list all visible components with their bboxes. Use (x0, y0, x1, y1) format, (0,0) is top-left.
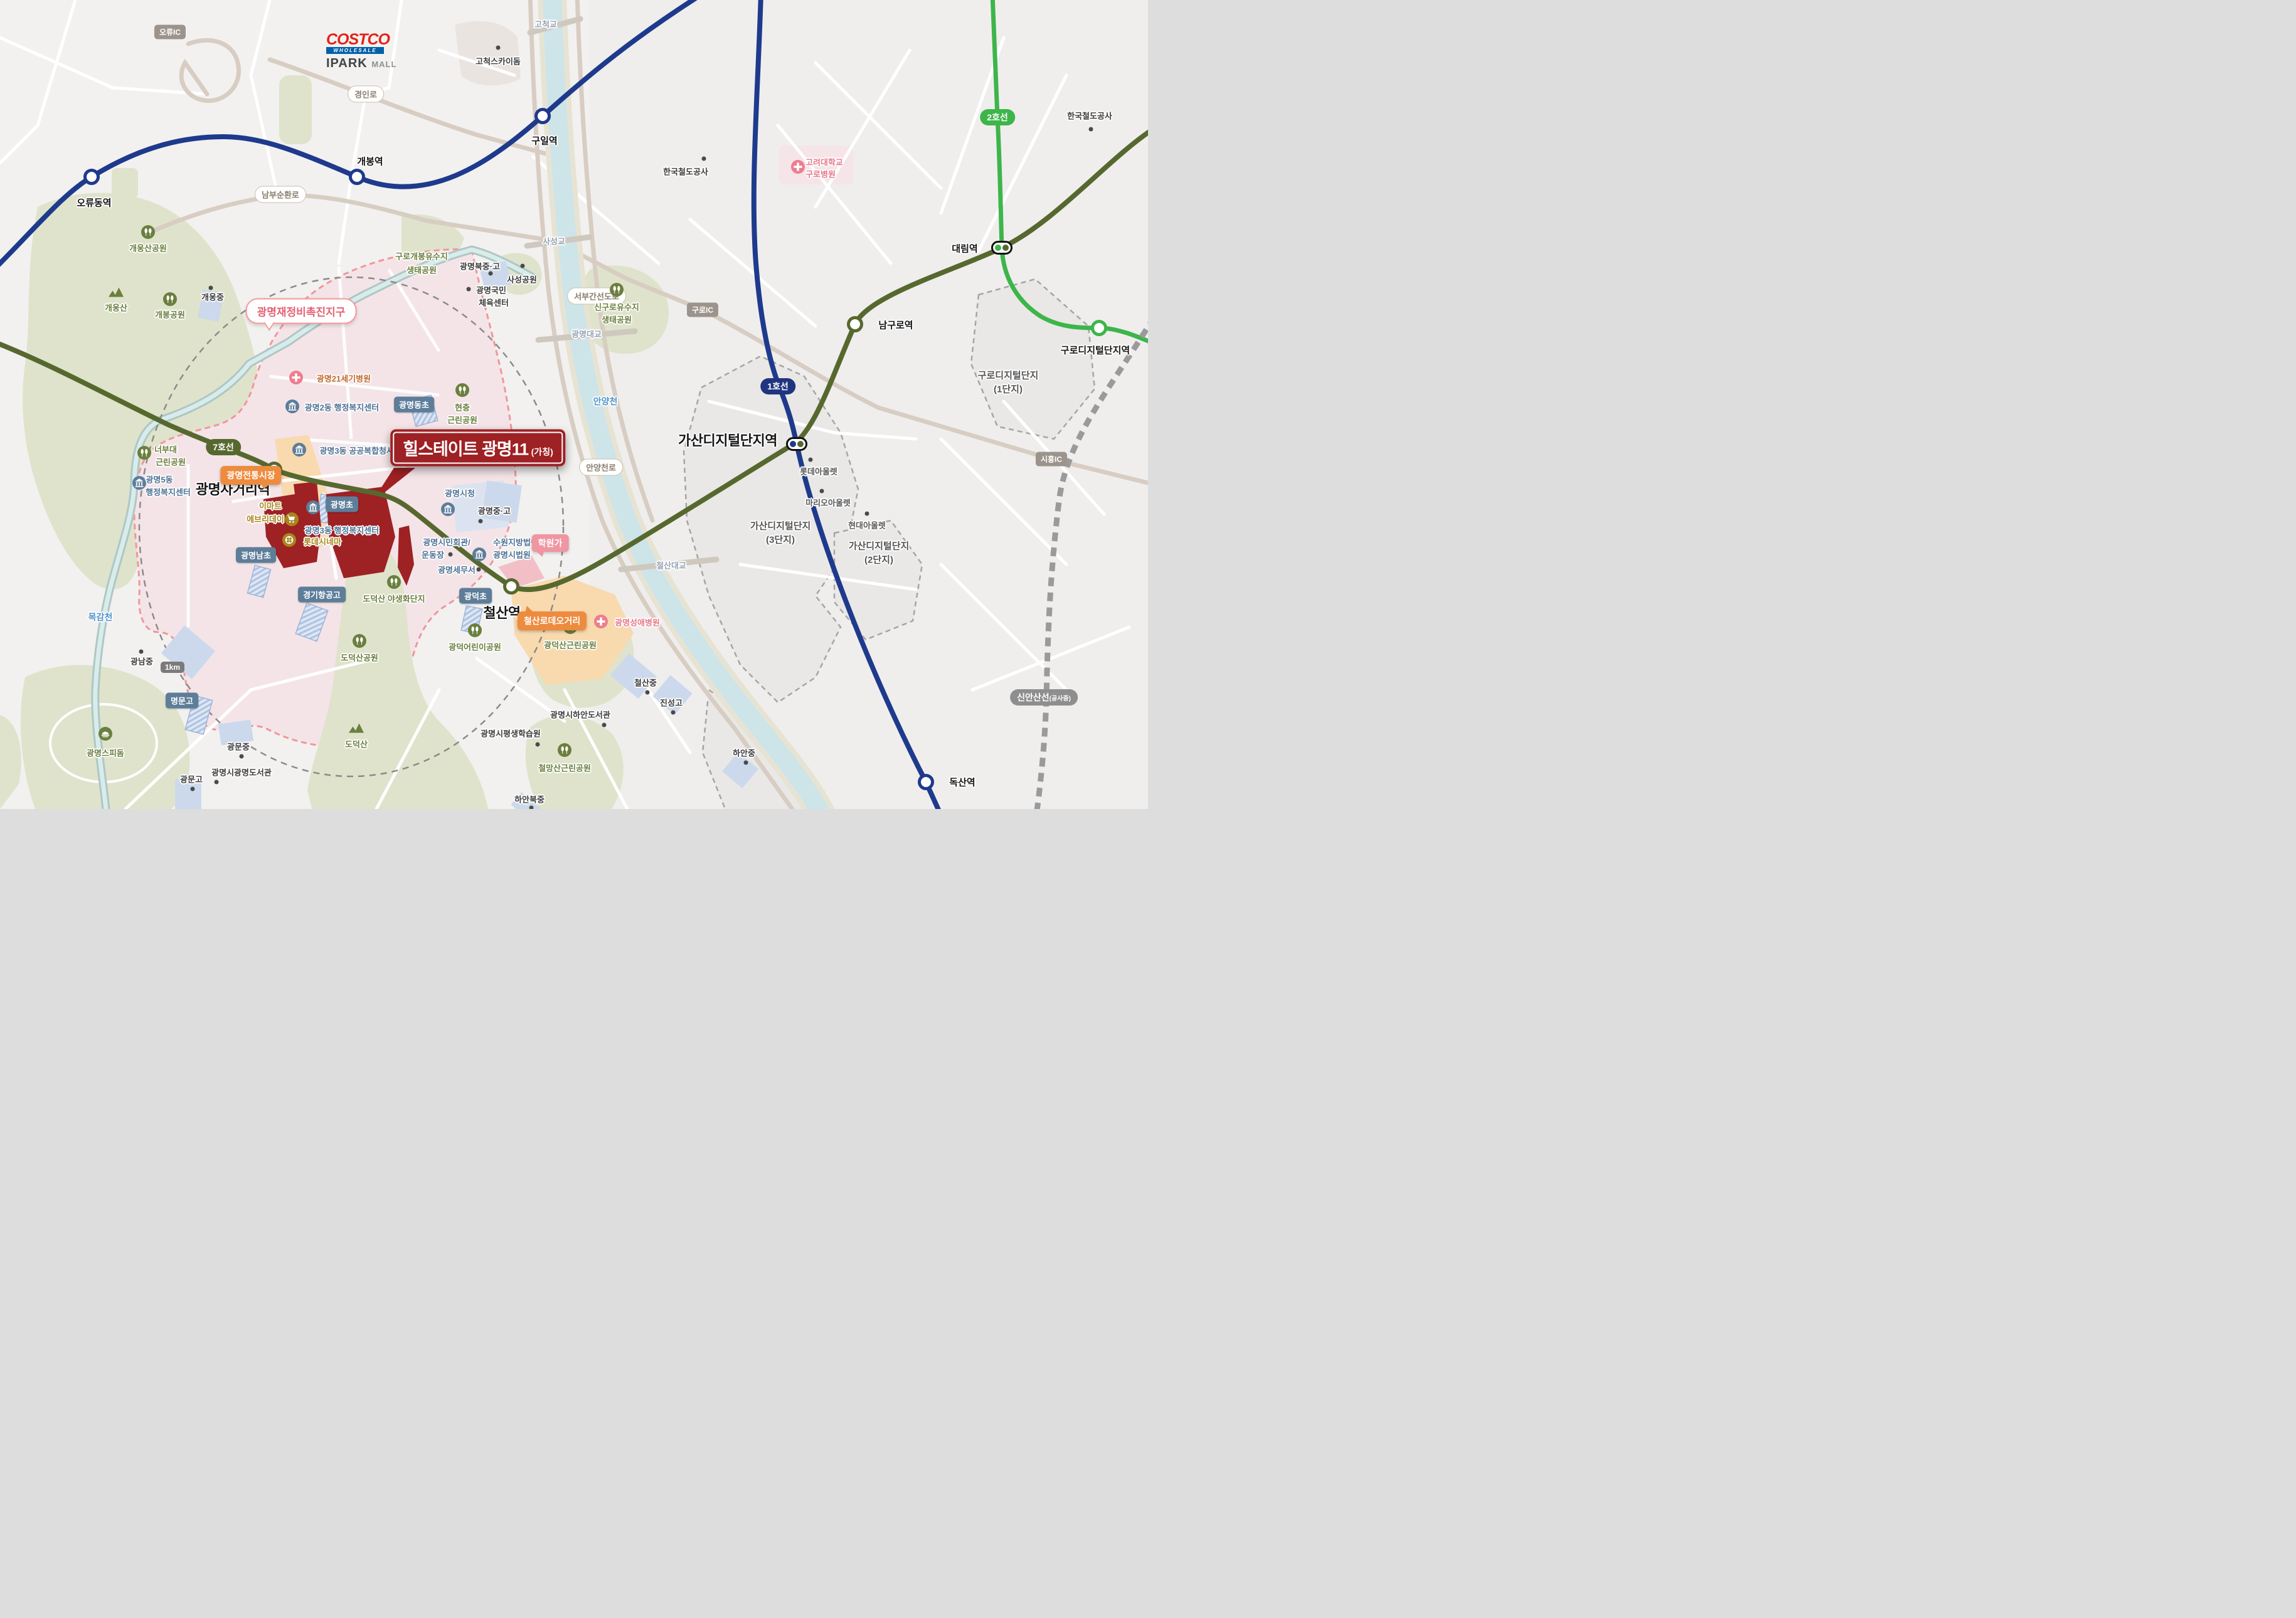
park-label-광덕어린이공원: 광덕어린이공원 (449, 641, 501, 653)
station-label-오류동역: 오류동역 (77, 196, 111, 209)
poi-label-광명시평생학습원: 광명시평생학습원 (481, 727, 541, 739)
road-label-남부순환로: 남부순환로 (255, 186, 306, 203)
mountain-label-도덕산: 도덕산 (345, 738, 368, 750)
development-title: 힐스테이트 광명11 (403, 440, 528, 459)
station-label-구일역: 구일역 (531, 134, 557, 147)
film-icon (282, 533, 296, 547)
한국철도공사-dot (1089, 127, 1093, 132)
area-label-(2단지): (2단지) (864, 553, 893, 566)
civic-label-행정복지센터: 행정복지센터 (146, 486, 191, 498)
line7-badge: 7호선 (206, 439, 241, 455)
광문중-dot (240, 754, 244, 759)
park-icon (137, 446, 151, 460)
ipark-mall-logo: IPARK MALL (326, 56, 396, 71)
park-icon (141, 225, 155, 239)
poi-label-광남중: 광남중 (130, 655, 153, 667)
shop-label-현대아울렛: 현대아울렛 (848, 519, 886, 531)
poi-label-철산중: 철산중 (634, 677, 657, 689)
mountain-icon (348, 722, 364, 734)
마리오아울렛-dot (820, 489, 824, 494)
station-label-남구로역: 남구로역 (878, 319, 913, 332)
park-label-광덕산근린공원: 광덕산근린공원 (544, 639, 597, 651)
광문고-dot (191, 787, 195, 791)
govt-office-icon (306, 500, 320, 514)
poi-label-한국철도공사: 한국철도공사 (1067, 110, 1112, 122)
poi-label-광명시하안도서관: 광명시하안도서관 (550, 709, 610, 721)
poi-label-광명북중·고: 광명북중·고 (460, 260, 500, 272)
cart-icon (285, 512, 299, 526)
location-map: COSTCO WHOLESALE IPARK MALL 광명재정비촉진지구 광명… (0, 0, 1148, 809)
park-label-현충: 현충 (455, 401, 470, 413)
개웅중-dot (209, 286, 213, 290)
poi-label-진성고: 진성고 (660, 697, 683, 709)
govt-office-icon (132, 476, 146, 490)
park-label-철망산근린공원: 철망산근린공원 (538, 762, 591, 774)
station-marker-구일역 (534, 108, 551, 124)
현대아울렛-dot (865, 512, 869, 516)
광명세무서-dot (477, 568, 481, 572)
hospital-cross-icon (289, 371, 303, 384)
poi-label-체육센터: 체육센터 (479, 297, 509, 309)
civic-label-광명3동 행정복지센터: 광명3동 행정복지센터 (305, 524, 379, 536)
area-label-구로디지털단지: 구로디지털단지 (978, 369, 1039, 382)
hospital-label-광명21세기병원: 광명21세기병원 (317, 373, 371, 384)
mountain-icon (108, 287, 124, 298)
station-label-구로디지털단지역: 구로디지털단지역 (1061, 344, 1130, 357)
park-label-생태공원: 생태공원 (602, 314, 632, 325)
rodeo-callout: 철산로데오거리 (518, 611, 587, 630)
park-label-너부대: 너부대 (154, 443, 177, 455)
station-label-대림역: 대림역 (952, 242, 977, 255)
hospital-label-고려대학교: 고려대학교 (805, 156, 843, 168)
park-icon (468, 623, 482, 637)
costco-ipark-logos: COSTCO WHOLESALE IPARK MALL (326, 33, 396, 71)
park-icon (558, 743, 571, 757)
station-marker-철산역 (503, 578, 519, 595)
park-label-근린공원: 근린공원 (447, 414, 477, 426)
광명시하안도서관-dot (602, 723, 607, 727)
station-label-가산디지털단지역: 가산디지털단지역 (678, 430, 777, 450)
poi-label-하안북중: 하안북중 (514, 793, 545, 805)
school-badge-광명동초: 광명동초 (394, 397, 434, 413)
bridge-label-사성교: 사성교 (543, 235, 565, 247)
development-callout: 힐스테이트 광명11 (가칭) (390, 430, 565, 467)
poi-label-광명국민: 광명국민 (476, 284, 506, 296)
station-label-개봉역: 개봉역 (357, 155, 383, 168)
transfer-marker-대림역 (991, 241, 1012, 255)
school-badge-경기항공고: 경기항공고 (298, 587, 346, 603)
ic-label-시흥IC: 시흥IC (1036, 452, 1067, 467)
광명국민-dot (467, 287, 471, 292)
고척스카이돔-dot (496, 46, 501, 50)
하안중-dot (744, 761, 748, 765)
velodrome-icon (98, 727, 112, 741)
bridge-label-고척교: 고척교 (534, 18, 557, 30)
map-geometry (0, 0, 1148, 809)
광명북중·고-dot (489, 272, 493, 276)
academy-callout: 학원가 (532, 534, 569, 552)
river-label-목감천: 목감천 (88, 611, 113, 623)
scale-badge: 1km (161, 662, 184, 673)
area-label-(1단지): (1단지) (994, 383, 1023, 396)
govt-office-icon (285, 399, 299, 413)
ic-label-오류IC: 오류IC (154, 25, 186, 40)
gold-label-에브리데이: 에브리데이 (247, 513, 284, 525)
mountain-label-개웅산: 개웅산 (105, 302, 127, 314)
park-icon (353, 634, 366, 648)
dome-label-광명스피돔: 광명스피돔 (87, 747, 124, 759)
market-callout: 광명전통시장 (220, 466, 281, 485)
bridge-label-철산대교: 철산대교 (656, 559, 686, 571)
hospital-label-광명성애병원: 광명성애병원 (615, 616, 660, 628)
poi-label-하안중: 하안중 (733, 747, 755, 759)
station-label-독산역: 독산역 (949, 776, 975, 789)
line2-badge: 2호선 (980, 109, 1015, 125)
운동장-dot (449, 553, 453, 557)
진성고-dot (671, 711, 676, 715)
school-badge-광명남초: 광명남초 (236, 547, 276, 563)
park-label-개웅산공원: 개웅산공원 (129, 242, 167, 254)
철산중-dot (646, 690, 650, 695)
station-marker-남구로역 (847, 316, 863, 332)
광남중-dot (139, 650, 144, 654)
사성공원-dot (521, 264, 525, 268)
shop-label-마리오아울렛: 마리오아울렛 (805, 497, 851, 509)
poi-label-사성공원: 사성공원 (507, 273, 537, 285)
ic-label-구로IC: 구로IC (687, 303, 718, 317)
hospital-label-구로병원: 구로병원 (805, 168, 836, 180)
poi-label-광명시광명도서관: 광명시광명도서관 (211, 766, 272, 778)
park-icon (455, 383, 469, 397)
district-callout: 광명재정비촉진지구 (246, 299, 357, 324)
hospital-cross-icon (594, 615, 608, 628)
civic-label-운동장: 운동장 (422, 549, 444, 561)
한국철도공사-dot (702, 157, 706, 161)
광명시광명도서관-dot (215, 780, 219, 785)
park-label-구로개봉유수지: 구로개봉유수지 (395, 250, 448, 262)
govt-office-icon (441, 502, 455, 516)
sinansan-badge: 신안산선(공사중) (1010, 689, 1078, 706)
station-marker-독산역 (918, 774, 934, 790)
poi-label-한국철도공사: 한국철도공사 (663, 166, 708, 177)
hospital-cross-icon (791, 160, 805, 174)
civic-label-광명2동 행정복지센터: 광명2동 행정복지센터 (305, 401, 379, 413)
road-label-경인로: 경인로 (348, 86, 384, 103)
line1-badge: 1호선 (760, 378, 795, 394)
station-label-철산역: 철산역 (483, 602, 520, 622)
하안북중-dot (529, 806, 534, 810)
govt-office-icon (472, 547, 486, 561)
development-suffix: (가칭) (531, 447, 553, 457)
gold-label-이마트: 이마트 (259, 500, 282, 512)
civic-label-광명시청: 광명시청 (445, 487, 475, 499)
civic-label-광명시민회관/: 광명시민회관/ (423, 536, 470, 548)
광명중·고-dot (479, 519, 483, 524)
shop-label-롯데아울렛: 롯데아울렛 (800, 465, 837, 477)
station-marker-오류동역 (83, 169, 100, 185)
park-label-도덕산 야생화단지: 도덕산 야생화단지 (363, 593, 425, 605)
park-label-신구로유수지: 신구로유수지 (594, 301, 639, 313)
poi-label-고척스카이돔: 고척스카이돔 (476, 55, 521, 67)
civic-label-광명5동: 광명5동 (146, 473, 173, 485)
park-label-도덕산공원: 도덕산공원 (341, 652, 378, 664)
area-label-가산디지털단지: 가산디지털단지 (849, 539, 910, 553)
school-badge-광명초: 광명초 (326, 497, 358, 512)
park-label-개봉공원: 개봉공원 (155, 309, 185, 320)
park-icon (387, 575, 401, 589)
road-label-안양천로: 안양천로 (579, 459, 623, 476)
bridge-label-광명대교: 광명대교 (571, 328, 602, 340)
gold-label-롯데시네마: 롯데시네마 (304, 536, 341, 547)
poi-label-광문중: 광문중 (227, 741, 250, 753)
area-label-가산디지털단지: 가산디지털단지 (750, 519, 811, 532)
costco-wholesale-bar: WHOLESALE (326, 47, 384, 54)
river-label-안양천: 안양천 (593, 395, 618, 408)
costco-logo: COSTCO (326, 33, 396, 47)
school-badge-광덕초: 광덕초 (459, 588, 492, 604)
civic-label-광명세무서: 광명세무서 (438, 564, 476, 576)
govt-office-icon (292, 443, 306, 457)
poi-label-광명중·고: 광명중·고 (478, 505, 511, 517)
civic-label-광명시법원: 광명시법원 (493, 549, 531, 561)
poi-label-광문고: 광문고 (180, 773, 203, 785)
station-marker-개봉역 (349, 169, 365, 185)
dome-area (455, 21, 521, 86)
롯데아울렛-dot (809, 458, 813, 462)
park-label-생태공원: 생태공원 (407, 264, 437, 276)
area-label-(3단지): (3단지) (766, 533, 795, 546)
광명시평생학습원-dot (536, 743, 540, 747)
transfer-marker-가산디지털단지역 (786, 437, 807, 451)
poi-label-개웅중: 개웅중 (201, 291, 224, 303)
park-icon (610, 283, 624, 297)
station-marker-구로디지털단지역 (1091, 320, 1107, 336)
school-badge-명문고: 명문고 (166, 693, 198, 709)
park-label-근린공원: 근린공원 (156, 456, 186, 468)
park-icon (163, 292, 177, 306)
